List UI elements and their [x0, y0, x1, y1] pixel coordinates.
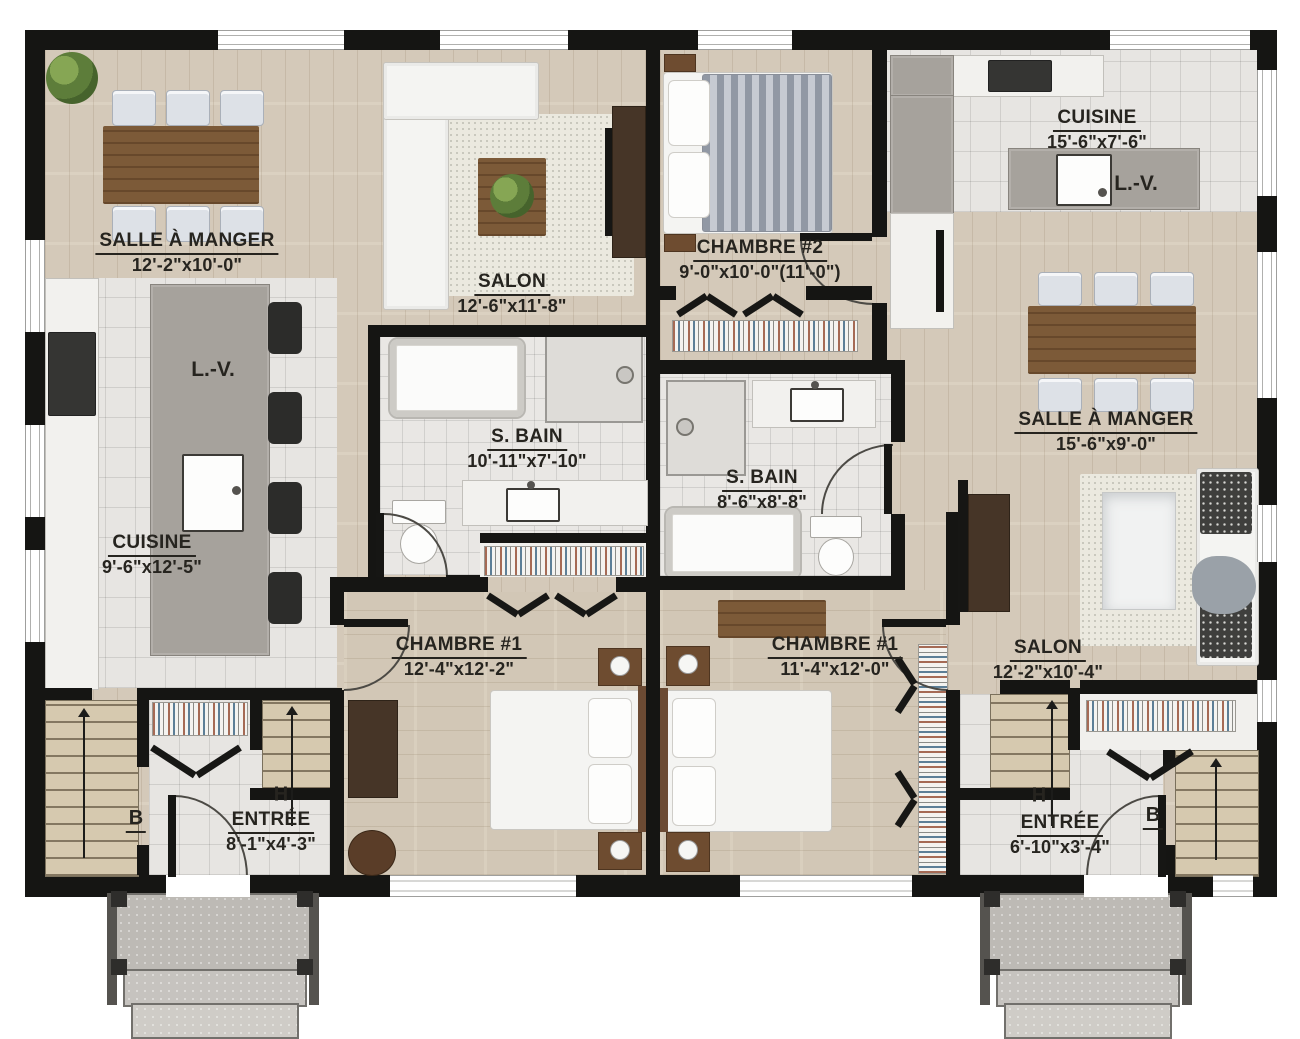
front-door-opening: [166, 875, 250, 897]
stair-direction-arrow: [76, 708, 92, 858]
window: [698, 30, 792, 50]
room-dims: 9'-6"x12'-5": [102, 558, 202, 577]
room-name: SALLE À MANGER: [95, 231, 278, 255]
window: [1257, 252, 1277, 398]
desk: [348, 700, 398, 798]
wall-segment: [480, 533, 646, 543]
door-leaf: [344, 619, 408, 627]
wall-segment: [616, 577, 646, 592]
tv-console: [612, 106, 646, 258]
floor-plan: SALLE À MANGER 12'-2"x10'-0" SALON 12'-6…: [0, 0, 1300, 1037]
wall-segment: [368, 325, 646, 337]
lamp: [678, 654, 698, 674]
tall-cabinet: [890, 213, 954, 329]
wall-segment: [660, 576, 905, 590]
wall-segment: [1000, 680, 1070, 694]
wall-segment: [330, 690, 344, 875]
porch-step: [996, 969, 1180, 1007]
dining-chair: [1038, 378, 1082, 412]
door-leaf: [376, 513, 384, 577]
upper-stairs-label: H: [1032, 785, 1046, 808]
shower-head: [676, 418, 694, 436]
room-label-left-chambre1: CHAMBRE #1 12'-4"x12'-2": [392, 635, 527, 679]
dining-table: [103, 126, 259, 204]
window: [25, 425, 45, 517]
room-name: S. BAIN: [722, 468, 802, 492]
room-label-right-chambre2: CHAMBRE #2 9'-0"x10'-0"(11'-0"): [679, 238, 841, 282]
wall-segment: [891, 360, 905, 442]
room-dims: 12'-6"x11'-8": [457, 297, 566, 316]
room-dims: 8'-6"x8'-8": [717, 493, 807, 512]
dining-table: [1028, 306, 1196, 374]
pillow: [668, 152, 710, 218]
dining-chair: [166, 90, 210, 126]
porch: [988, 893, 1188, 973]
toilet-tank: [810, 516, 862, 538]
tv-icon: [605, 128, 612, 236]
room-name: SALON: [1010, 638, 1086, 662]
upper-stairs-label: H: [274, 784, 288, 807]
console-table: [718, 600, 826, 638]
dishwasher-label: L.-V.: [191, 358, 235, 382]
door-leaf: [884, 444, 892, 514]
room-label-right-chambre1: CHAMBRE #1 11'-4"x12'-0": [768, 635, 903, 679]
striped-duvet: [702, 74, 832, 232]
room-dims: 12'-2"x10'-4": [993, 663, 1103, 682]
dining-chair: [1038, 272, 1082, 306]
cabinet-handle: [936, 230, 944, 312]
window: [1257, 505, 1277, 562]
kitchen-counter: [890, 95, 954, 215]
room-name: ENTRÉE: [1017, 813, 1104, 837]
room-dims: 12'-4"x12'-2": [392, 660, 527, 679]
window: [1257, 70, 1277, 196]
wall-segment: [149, 688, 342, 700]
bar-stool: [268, 302, 302, 354]
room-label-left-cuisine: CUISINE 9'-6"x12'-5": [102, 533, 202, 577]
bathroom-sink: [506, 488, 560, 522]
basement-stairs-label: B: [1143, 804, 1163, 830]
porch-post: [297, 959, 313, 975]
porch-post: [1170, 959, 1186, 975]
front-door-opening: [1084, 875, 1168, 897]
window: [1213, 875, 1253, 897]
wall-segment: [137, 845, 149, 875]
porch-rail: [107, 893, 117, 1005]
room-dims: 11'-4"x12'-0": [768, 660, 903, 679]
door-leaf: [882, 619, 946, 627]
potted-plant: [46, 52, 98, 104]
closet-door-chevron: [1108, 748, 1192, 784]
window: [1257, 680, 1277, 722]
room-dims: 15'-6"x7'-6": [1047, 133, 1147, 152]
wall-segment: [45, 688, 92, 700]
closet-hangers: [1086, 700, 1236, 732]
window: [1110, 30, 1250, 50]
basement-stairs-label: B: [126, 807, 146, 833]
wall-segment: [872, 50, 887, 237]
room-dims: 15'-6"x9'-0": [1014, 435, 1197, 454]
porch-step: [1004, 1003, 1172, 1039]
dining-chair: [220, 90, 264, 126]
room-label-right-bath: S. BAIN 8'-6"x8'-8": [717, 468, 807, 512]
wall-segment: [946, 690, 960, 875]
window: [440, 30, 568, 50]
room-label-right-entree: ENTRÉE 6'-10"x3'-4": [1010, 813, 1110, 857]
room-name: SALON: [474, 272, 550, 296]
stair-direction-arrow: [1044, 700, 1060, 826]
pillow: [672, 698, 716, 758]
room-name: CUISINE: [1053, 108, 1140, 132]
wall-segment: [660, 360, 905, 374]
faucet: [1098, 188, 1107, 197]
dining-chair: [1094, 272, 1138, 306]
faucet: [811, 381, 819, 389]
bar-stool: [268, 482, 302, 534]
window: [740, 875, 912, 897]
pillow: [668, 80, 710, 146]
porch-post: [111, 959, 127, 975]
porch-post: [297, 891, 313, 907]
bathroom-sink: [790, 388, 844, 422]
kitchen-corner-counter: [890, 55, 954, 97]
room-dims: 6'-10"x3'-4": [1010, 838, 1110, 857]
dining-chair: [112, 90, 156, 126]
closet-door-chevron: [894, 772, 918, 826]
coffee-table: [1102, 492, 1176, 610]
dishwasher-label: L.-V.: [1114, 172, 1158, 196]
room-label-left-dining: SALLE À MANGER 12'-2"x10'-0": [95, 231, 278, 275]
room-name: S. BAIN: [487, 427, 567, 451]
basement-staircase: [45, 700, 139, 877]
closet-door-chevron: [744, 290, 802, 318]
door-leaf: [168, 795, 176, 877]
sectional-sofa: [383, 62, 539, 120]
bar-stool: [268, 572, 302, 624]
room-dims: 10'-11"x7'-10": [467, 452, 587, 471]
room-label-left-entree: ENTRÉE 8'-1"x4'-3": [226, 810, 316, 854]
room-name: CHAMBRE #2: [693, 238, 828, 262]
room-dims: 12'-2"x10'-0": [95, 256, 278, 275]
wall-segment: [1080, 680, 1257, 694]
room-label-right-dining: SALLE À MANGER 15'-6"x9'-0": [1014, 410, 1197, 454]
room-label-left-salon: SALON 12'-6"x11'-8": [457, 272, 566, 316]
porch-rail: [1182, 893, 1192, 1005]
room-label-right-salon: SALON 12'-2"x10'-4": [993, 638, 1103, 682]
headboard: [660, 688, 668, 832]
room-name: SALLE À MANGER: [1014, 410, 1197, 434]
porch: [115, 893, 315, 973]
dining-chair: [1094, 378, 1138, 412]
room-name: CHAMBRE #1: [768, 635, 903, 659]
window: [218, 30, 344, 50]
room-name: ENTRÉE: [228, 810, 315, 834]
room-label-right-cuisine: CUISINE 15'-6"x7'-6": [1047, 108, 1147, 152]
toilet-bowl: [818, 538, 854, 576]
room-name: CHAMBRE #1: [392, 635, 527, 659]
dining-chair: [1150, 272, 1194, 306]
porch-step: [123, 969, 307, 1007]
bathtub: [388, 337, 526, 419]
stair-direction-arrow: [284, 706, 300, 826]
stair-direction-arrow: [1208, 758, 1224, 860]
window: [25, 240, 45, 332]
closet-hangers: [672, 320, 858, 352]
porch-post: [111, 891, 127, 907]
faucet: [527, 481, 535, 489]
throw-blanket: [1192, 556, 1256, 614]
room-name: CUISINE: [108, 533, 195, 557]
dining-chair: [1150, 378, 1194, 412]
chair: [348, 830, 396, 876]
wall-segment: [337, 577, 488, 592]
closet-hangers: [484, 546, 644, 576]
closet-hangers: [152, 702, 248, 736]
room-label-left-bath: S. BAIN 10'-11"x7'-10": [467, 427, 587, 471]
closet-door-chevron: [678, 290, 736, 318]
room-dims: 8'-1"x4'-3": [226, 835, 316, 854]
tv-icon: [958, 480, 968, 612]
wall-segment: [250, 688, 262, 750]
wall-segment: [1068, 688, 1080, 750]
pillow: [588, 698, 632, 758]
window: [390, 875, 576, 897]
table-plant: [490, 174, 534, 218]
pillow: [588, 764, 632, 824]
lamp: [610, 656, 630, 676]
bar-stool: [268, 392, 302, 444]
porch-step: [131, 1003, 299, 1039]
lamp: [678, 840, 698, 860]
cooktop: [988, 60, 1052, 92]
porch-post: [984, 891, 1000, 907]
closet-door-chevron: [152, 744, 240, 782]
faucet: [232, 486, 241, 495]
shower-head: [616, 366, 634, 384]
porch-rail: [980, 893, 990, 1005]
kitchen-sink: [1056, 154, 1112, 206]
closet-door-chevron: [488, 592, 548, 622]
pillow: [672, 766, 716, 826]
lamp: [610, 840, 630, 860]
wall-segment: [137, 688, 149, 767]
porch-rail: [309, 893, 319, 1005]
wall-segment: [806, 286, 872, 300]
bathtub: [664, 506, 802, 580]
tv-console: [968, 494, 1010, 612]
nightstand: [664, 54, 696, 72]
wall-segment: [660, 286, 676, 300]
room-dims: 9'-0"x10'-0"(11'-0"): [679, 263, 841, 282]
closet-door-chevron: [556, 592, 616, 622]
wall-segment: [330, 577, 344, 625]
headboard: [638, 686, 646, 832]
stove: [48, 332, 96, 416]
porch-post: [1170, 891, 1186, 907]
window: [25, 550, 45, 642]
patterned-cushion: [1200, 472, 1252, 534]
porch-post: [984, 959, 1000, 975]
